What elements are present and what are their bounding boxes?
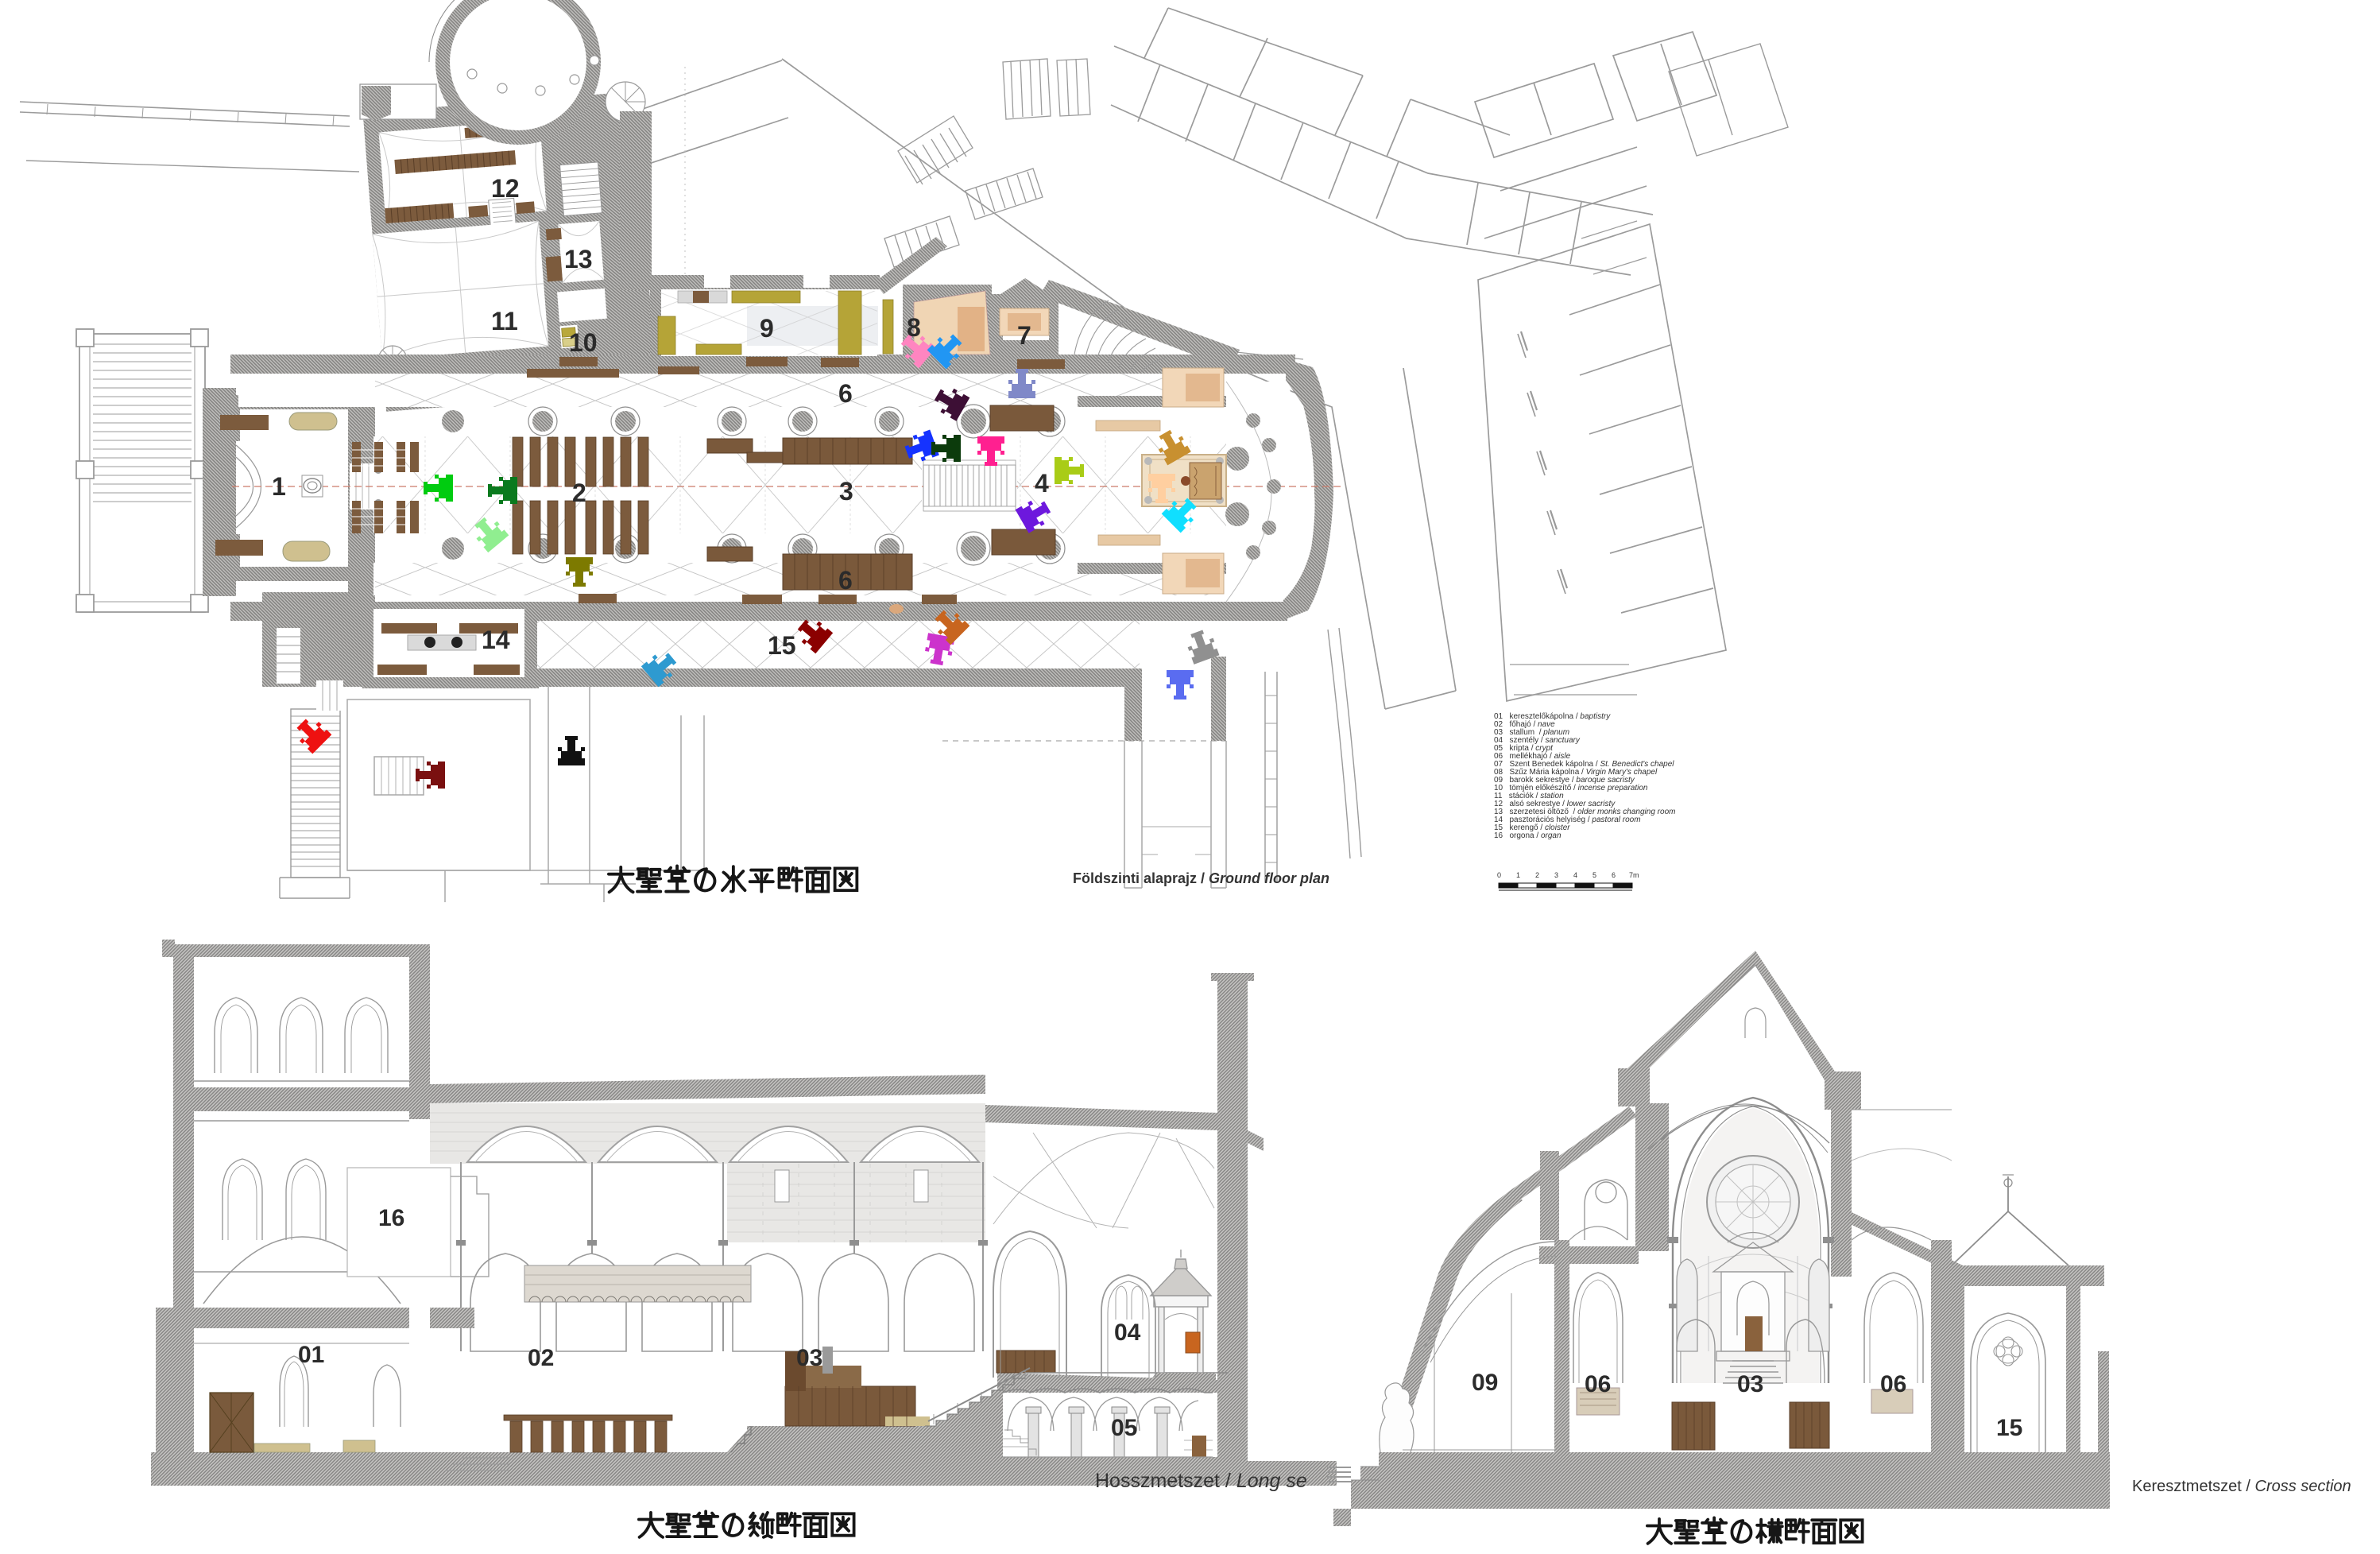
svg-text:02: 02 <box>528 1345 554 1371</box>
svg-text:01: 01 <box>298 1342 324 1368</box>
svg-text:1: 1 <box>272 472 286 501</box>
svg-text:03: 03 <box>1737 1371 1763 1397</box>
svg-text:4: 4 <box>1573 871 1577 879</box>
svg-text:6: 6 <box>838 566 853 595</box>
svg-text:9: 9 <box>760 314 774 343</box>
svg-text:6: 6 <box>838 379 853 408</box>
svg-text:14: 14 <box>482 626 510 654</box>
svg-text:6: 6 <box>1612 871 1616 879</box>
svg-text:3: 3 <box>1554 871 1558 879</box>
svg-text:Keresztmetszet / Cross section: Keresztmetszet / Cross section <box>2132 1478 2351 1495</box>
svg-text:1: 1 <box>1516 871 1520 879</box>
svg-text:03: 03 <box>796 1345 822 1371</box>
svg-text:09: 09 <box>1472 1370 1498 1396</box>
svg-text:3: 3 <box>839 477 853 506</box>
svg-text:04: 04 <box>1114 1320 1141 1346</box>
svg-text:2: 2 <box>572 479 586 507</box>
svg-text:16 orgona / organ: 16 orgona / organ <box>1494 831 1562 840</box>
svg-text:06: 06 <box>1880 1371 1906 1397</box>
svg-text:Hosszmetszet / Long se: Hosszmetszet / Long se <box>1095 1470 1307 1492</box>
svg-text:10: 10 <box>569 328 598 357</box>
svg-text:0: 0 <box>1497 871 1501 879</box>
svg-text:06: 06 <box>1585 1371 1611 1397</box>
svg-text:8: 8 <box>907 313 921 342</box>
svg-text:7m: 7m <box>1629 871 1639 879</box>
svg-text:13: 13 <box>564 245 593 273</box>
svg-text:5: 5 <box>1592 871 1596 879</box>
svg-text:4: 4 <box>1035 469 1049 498</box>
svg-text:Földszinti alaprajz / Ground f: Földszinti alaprajz / Ground floor plan <box>1073 870 1329 886</box>
svg-text:15: 15 <box>1996 1415 2022 1441</box>
svg-text:15: 15 <box>768 631 796 660</box>
svg-text:7: 7 <box>1017 321 1031 350</box>
svg-text:11: 11 <box>491 307 518 335</box>
svg-text:12: 12 <box>491 174 520 203</box>
svg-text:2: 2 <box>1535 871 1539 879</box>
svg-text:05: 05 <box>1111 1415 1137 1441</box>
svg-text:16: 16 <box>378 1205 404 1231</box>
